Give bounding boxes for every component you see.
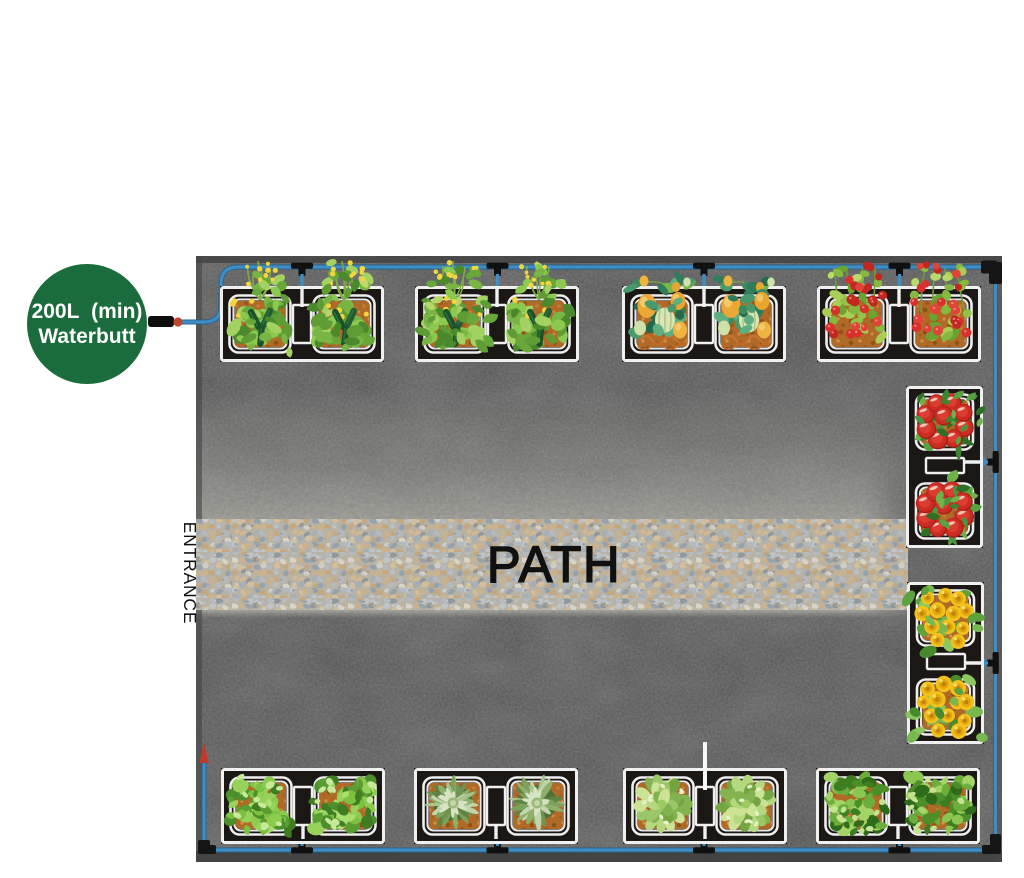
svg-text:200L (min): 200L (min): [32, 300, 143, 323]
svg-text:Waterbutt: Waterbutt: [38, 325, 135, 348]
svg-text:PATH: PATH: [487, 536, 621, 593]
svg-text:ENTRANCE: ENTRANCE: [180, 522, 200, 625]
